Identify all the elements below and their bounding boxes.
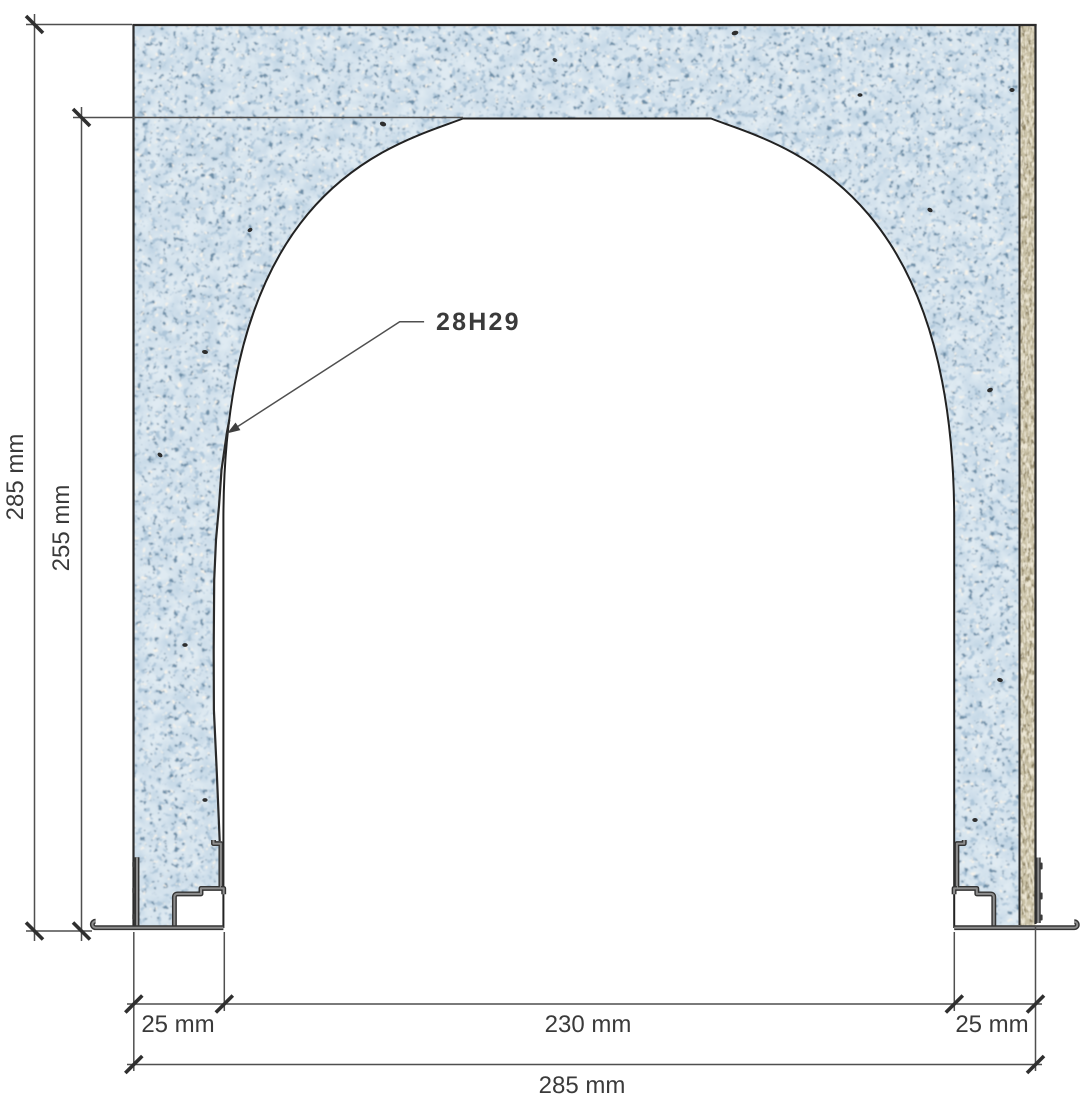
svg-text:25 mm: 25 mm (141, 1011, 214, 1038)
svg-text:255 mm: 255 mm (48, 485, 75, 572)
svg-text:230 mm: 230 mm (545, 1011, 632, 1038)
svg-text:285 mm: 285 mm (539, 1072, 626, 1099)
svg-text:28H29: 28H29 (436, 308, 521, 336)
svg-text:285 mm: 285 mm (2, 434, 29, 521)
svg-text:25 mm: 25 mm (955, 1011, 1028, 1038)
